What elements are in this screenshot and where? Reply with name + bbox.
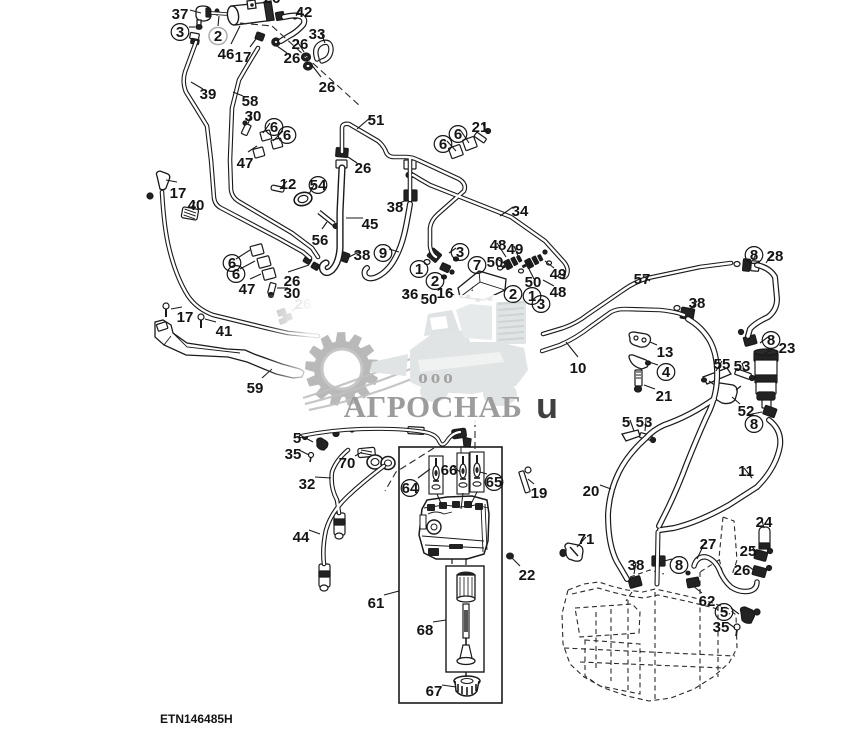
svg-text:8: 8 [750,416,758,433]
svg-text:2: 2 [509,286,517,303]
svg-text:23: 23 [779,340,796,357]
svg-text:47: 47 [239,281,256,298]
svg-text:2: 2 [214,28,222,45]
svg-text:21: 21 [472,119,489,136]
svg-text:48: 48 [550,284,567,301]
svg-text:1: 1 [415,261,423,278]
svg-text:13: 13 [657,344,674,361]
svg-text:47: 47 [237,155,254,172]
svg-text:49: 49 [507,241,524,258]
svg-text:56: 56 [312,232,329,249]
svg-text:36: 36 [402,286,419,303]
svg-text:27: 27 [700,536,717,553]
svg-text:44: 44 [293,529,310,546]
svg-text:51: 51 [368,112,385,129]
svg-text:20: 20 [583,483,600,500]
svg-text:8: 8 [750,247,758,264]
svg-text:17: 17 [170,185,187,202]
svg-text:u: u [536,385,558,426]
svg-text:АГРОСНАБ: АГРОСНАБ [344,389,523,424]
svg-text:30: 30 [245,108,262,125]
svg-text:45: 45 [362,216,379,233]
svg-text:50: 50 [525,274,542,291]
svg-text:6: 6 [439,136,447,153]
svg-text:ETN146485H: ETN146485H [160,712,233,726]
svg-text:33: 33 [309,26,326,43]
svg-text:5: 5 [622,414,630,431]
svg-text:38: 38 [689,295,706,312]
svg-text:8: 8 [675,557,683,574]
svg-text:70: 70 [339,455,356,472]
svg-text:62: 62 [699,593,716,610]
svg-text:3: 3 [456,244,464,261]
svg-text:49: 49 [550,266,567,283]
svg-text:21: 21 [656,388,673,405]
svg-text:↓: ↓ [470,284,474,293]
svg-text:50: 50 [487,254,504,271]
svg-text:17: 17 [177,309,194,326]
svg-text:ооо: ооо [418,367,456,388]
svg-text:28: 28 [767,248,784,265]
svg-text:6: 6 [283,127,291,144]
svg-text:53: 53 [636,414,653,431]
svg-text:66: 66 [441,462,458,479]
svg-text:38: 38 [387,199,404,216]
svg-text:35: 35 [285,446,302,463]
svg-text:26: 26 [284,50,301,67]
svg-text:39: 39 [200,86,217,103]
svg-text:40: 40 [188,197,205,214]
svg-text:59: 59 [247,380,264,397]
svg-text:22: 22 [519,567,536,584]
svg-text:4: 4 [662,364,671,381]
svg-text:68: 68 [417,622,434,639]
svg-text:8: 8 [767,332,775,349]
svg-text:53: 53 [734,358,751,375]
svg-text:7: 7 [473,257,481,274]
svg-text:12: 12 [280,176,297,193]
svg-text:9: 9 [379,245,387,262]
svg-text:55: 55 [714,356,731,373]
svg-text:35: 35 [713,619,730,636]
svg-text:42: 42 [296,4,313,21]
svg-text:3: 3 [176,24,184,41]
svg-text:38: 38 [628,557,645,574]
svg-text:26: 26 [264,0,281,7]
svg-text:17: 17 [235,49,252,66]
svg-text:67: 67 [426,683,443,700]
svg-text:6: 6 [270,119,278,136]
svg-text:11: 11 [738,463,754,480]
svg-text:41: 41 [216,323,233,340]
svg-text:46: 46 [218,46,235,63]
svg-text:37: 37 [172,6,189,23]
svg-text:6: 6 [454,126,462,143]
svg-text:10: 10 [570,360,587,377]
svg-text:71: 71 [578,531,595,548]
svg-text:32: 32 [299,476,316,493]
svg-text:19: 19 [531,485,548,502]
svg-text:16: 16 [437,285,454,302]
svg-text:61: 61 [368,595,385,612]
svg-text:3: 3 [537,296,545,313]
svg-text:57: 57 [634,271,651,288]
svg-text:48: 48 [490,237,507,254]
svg-text:34: 34 [512,203,529,220]
svg-text:26: 26 [319,79,336,96]
svg-text:30: 30 [284,285,301,302]
svg-text:26: 26 [734,562,751,579]
svg-text:25: 25 [740,543,757,560]
svg-text:24: 24 [756,514,773,531]
svg-text:50: 50 [421,291,438,308]
svg-text:5: 5 [293,430,301,447]
svg-text:38: 38 [354,247,371,264]
svg-text:26: 26 [355,160,372,177]
